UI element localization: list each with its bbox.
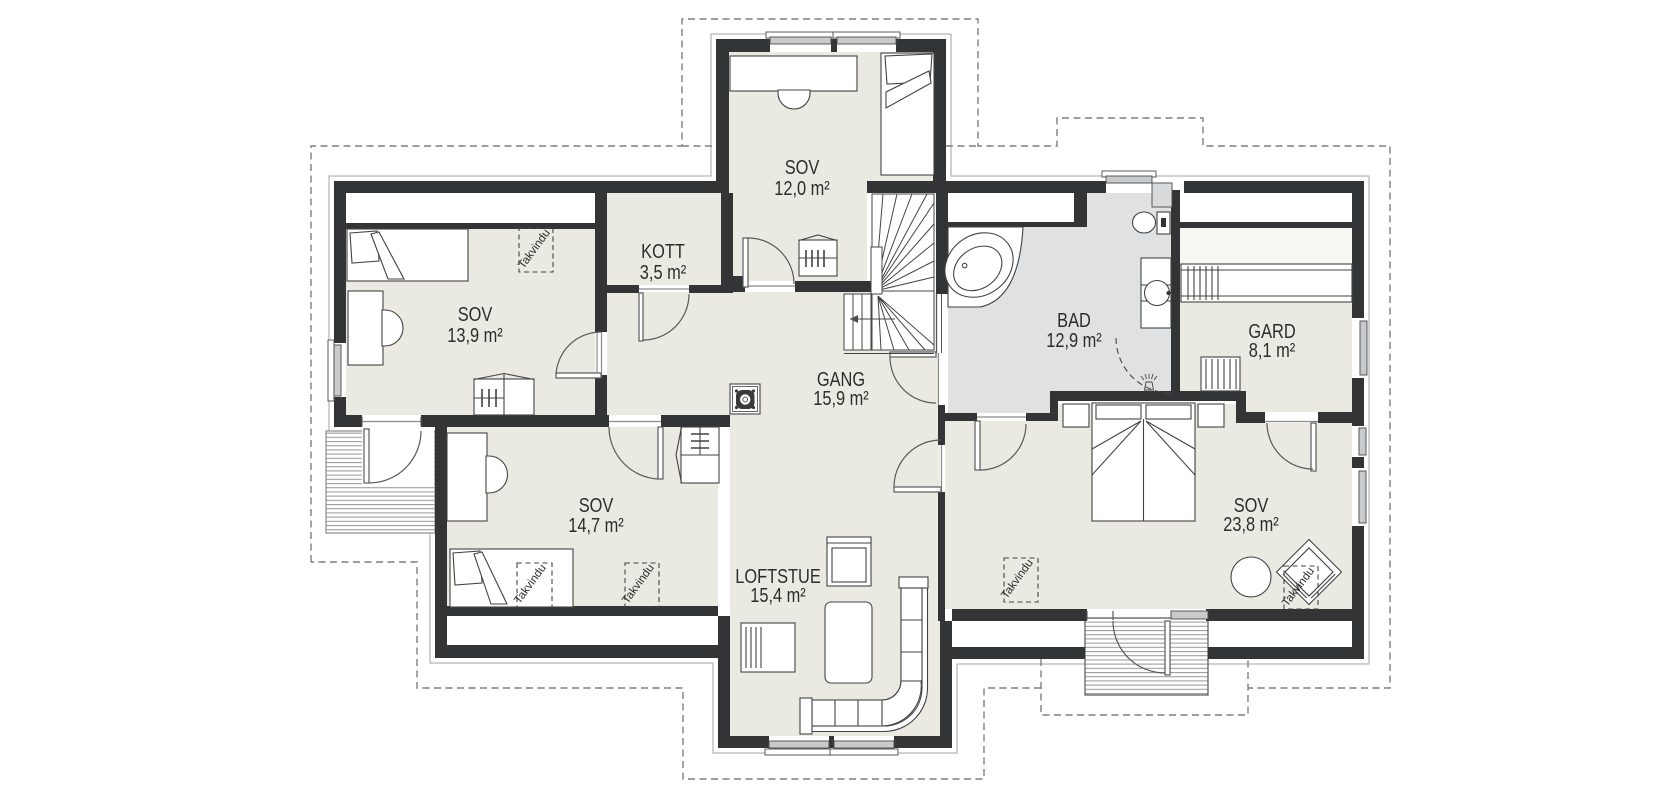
svg-text:23,8 m²: 23,8 m² <box>1223 512 1279 535</box>
svg-text:15,4 m²: 15,4 m² <box>750 583 806 606</box>
svg-text:SOV: SOV <box>785 155 820 178</box>
svg-text:8,1 m²: 8,1 m² <box>1249 338 1295 361</box>
svg-text:15,9 m²: 15,9 m² <box>813 386 869 409</box>
svg-text:14,7 m²: 14,7 m² <box>568 513 624 536</box>
svg-text:3,5 m²: 3,5 m² <box>640 260 686 283</box>
svg-text:12,0 m²: 12,0 m² <box>774 176 830 199</box>
svg-text:12,9 m²: 12,9 m² <box>1046 328 1102 351</box>
svg-text:KOTT: KOTT <box>641 239 685 262</box>
svg-text:13,9 m²: 13,9 m² <box>447 323 503 346</box>
svg-text:SOV: SOV <box>458 302 493 325</box>
